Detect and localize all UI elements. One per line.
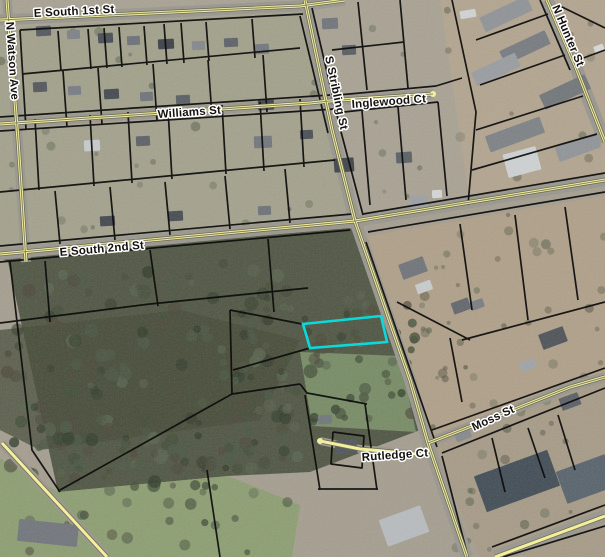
aerial-parcel-map[interactable]: E South 1st St N Watson Ave Williams St … xyxy=(0,0,605,557)
map-canvas[interactable]: E South 1st St N Watson Ave Williams St … xyxy=(0,0,605,557)
